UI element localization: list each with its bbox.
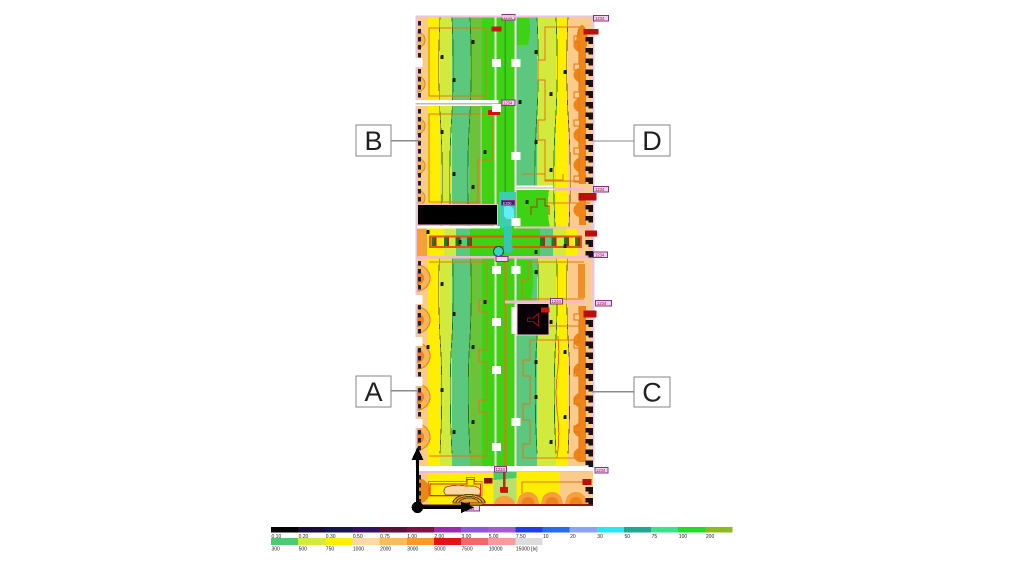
svg-text:D: D [642,126,662,156]
svg-text:100: 100 [679,534,688,540]
svg-text:300: 300 [272,547,281,553]
svg-text:1234: 1234 [503,101,513,106]
svg-text:750: 750 [326,547,335,553]
svg-text:50: 50 [625,534,631,540]
svg-text:30: 30 [597,534,603,540]
svg-text:1234: 1234 [597,301,607,306]
svg-text:7500: 7500 [462,547,473,553]
svg-text:10: 10 [543,534,549,540]
svg-text:1234: 1234 [595,253,605,258]
svg-text:20: 20 [570,534,576,540]
svg-text:1234: 1234 [496,467,506,472]
svg-text:5000: 5000 [434,547,445,553]
svg-text:C: C [642,378,662,408]
svg-text:200: 200 [706,534,715,540]
svg-text:15000 [lx]: 15000 [lx] [516,547,538,553]
svg-text:A: A [364,377,382,407]
svg-text:75: 75 [652,534,658,540]
svg-text:3000: 3000 [407,547,418,553]
svg-text:1000: 1000 [353,547,364,553]
svg-text:10000: 10000 [489,547,503,553]
svg-text:1234: 1234 [595,16,605,21]
svg-text:1234: 1234 [552,299,562,304]
svg-text:2000: 2000 [380,547,391,553]
svg-text:1234: 1234 [595,187,605,192]
svg-text:1234: 1234 [596,468,606,473]
svg-text:B: B [364,126,382,156]
svg-text:E150: E150 [503,201,511,205]
svg-text:500: 500 [299,547,308,553]
